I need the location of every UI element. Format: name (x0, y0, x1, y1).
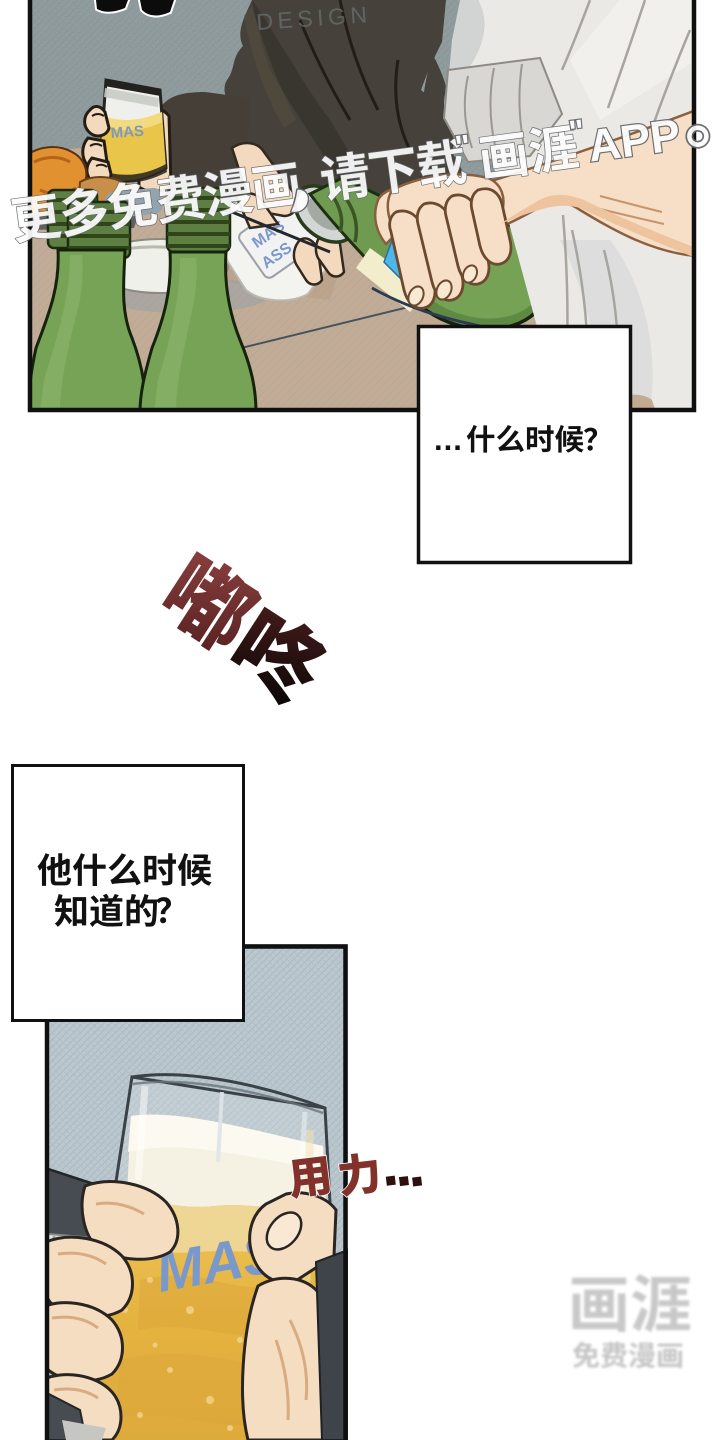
svg-text:...: ... (434, 422, 463, 457)
svg-text:MAS: MAS (110, 123, 144, 142)
